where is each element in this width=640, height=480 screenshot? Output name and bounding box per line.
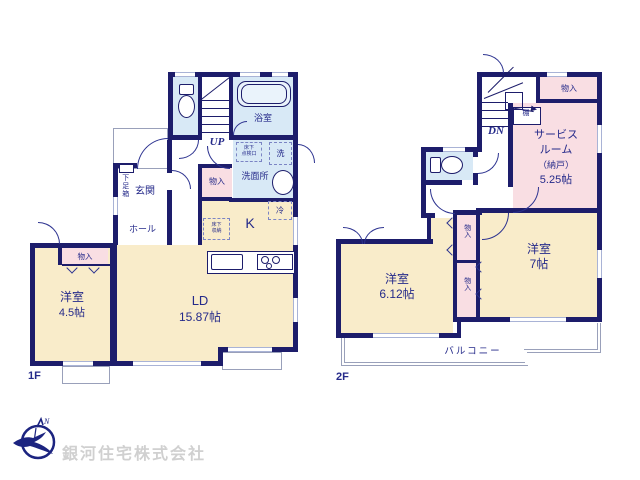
room-size: 5.25帖 <box>540 174 572 186</box>
bedroom-4-5-closet-label: 物入 <box>62 252 108 261</box>
wall <box>198 201 202 245</box>
entrance-label: 玄関 <box>124 186 166 199</box>
room-size: 4.5帖 <box>59 307 85 319</box>
underfloor-inspection-box: 床下 点検口 <box>236 142 262 162</box>
fridge-box: 冷 <box>268 201 292 220</box>
wall <box>168 72 173 140</box>
window <box>293 217 298 245</box>
step-bedroom <box>62 366 110 384</box>
wall <box>336 239 341 338</box>
room-name-line: ルーム <box>540 144 573 156</box>
window <box>133 361 201 366</box>
hall-closet-label: 物入 <box>202 177 232 187</box>
label: 洗 <box>277 149 285 158</box>
balcony-label: バルコニー <box>423 346 523 358</box>
window <box>547 72 567 77</box>
wall <box>597 72 602 322</box>
wall <box>473 173 478 185</box>
window <box>443 147 465 152</box>
window <box>113 197 118 215</box>
room-name: 洋室 <box>527 242 551 256</box>
living-dining-label: LD 15.87帖 <box>155 293 245 326</box>
window <box>597 250 602 278</box>
stairs-up-label: UP <box>202 136 232 150</box>
wall <box>453 260 480 263</box>
window <box>597 125 602 153</box>
window <box>293 298 298 322</box>
wall <box>110 243 117 366</box>
washer-box: 洗 <box>269 142 292 165</box>
room-name-line: （納戸） <box>538 160 574 170</box>
step-living <box>222 352 282 370</box>
shoe-box-label: 下足箱 <box>120 174 129 198</box>
bathtub-inner <box>241 84 287 104</box>
wall <box>218 347 223 366</box>
window <box>272 72 288 77</box>
kitchen-label: K <box>235 215 265 233</box>
door-arc <box>364 227 384 244</box>
room-size: 6.12帖 <box>379 287 414 301</box>
window <box>175 72 195 77</box>
window <box>510 317 566 322</box>
kitchen-sink <box>211 254 243 270</box>
bath-label: 浴室 <box>240 113 286 124</box>
company-logo-icon: N <box>10 412 64 466</box>
label: 収納 <box>211 229 221 235</box>
company-logo: N 銀河住宅株式会社 <box>10 412 310 468</box>
washroom-label: 洗面所 <box>231 171 279 182</box>
toilet-bowl-icon <box>178 95 195 118</box>
shoe-box-top <box>119 164 134 173</box>
upper-closet-label: 物入 <box>540 84 598 94</box>
stair-treads <box>202 93 229 138</box>
room-name: 洋室 <box>385 272 409 286</box>
door-arc <box>38 222 60 244</box>
room-size: 7帖 <box>530 257 549 271</box>
floor-2-label: 2F <box>336 371 366 385</box>
stove-burner <box>272 256 280 264</box>
wall <box>198 197 232 201</box>
window <box>228 347 272 352</box>
stairs-down-label: DN <box>482 125 510 139</box>
toilet-tank-icon <box>430 157 441 173</box>
bedroom-6-12-label: 洋室 6.12帖 <box>352 272 442 302</box>
wall <box>229 77 233 140</box>
stove-burner <box>266 263 272 269</box>
door-arc <box>298 144 315 163</box>
toilet-bowl-icon <box>441 156 463 174</box>
room-name: LD <box>192 293 209 308</box>
window <box>63 361 93 366</box>
wall <box>426 180 462 185</box>
door-arc <box>343 227 363 244</box>
hall-label: ホール <box>118 224 167 235</box>
door-arc <box>483 54 504 73</box>
wall <box>30 243 35 366</box>
closet-a-label: 物入 <box>462 224 471 238</box>
company-name: 銀河住宅株式会社 <box>62 440 206 464</box>
underfloor-storage-box: 床下 収納 <box>203 218 230 240</box>
svg-text:N: N <box>43 417 50 426</box>
wall <box>167 190 172 245</box>
wall <box>538 99 598 103</box>
wall <box>229 135 298 140</box>
shelf-label: 棚 <box>513 110 539 119</box>
closet-b-label: 物入 <box>462 277 471 291</box>
label: 点検口 <box>241 152 256 158</box>
window <box>240 72 260 77</box>
balcony-outline <box>524 323 598 350</box>
room-size: 15.87帖 <box>179 310 221 324</box>
room-name: 洋室 <box>60 290 84 304</box>
floor-plan-canvas: 床下 点検口 洗 冷 床下 収納 浴室 UP 洗面所 物入 K 玄関 下足箱 ホ… <box>0 0 640 480</box>
label: 冷 <box>276 206 284 215</box>
bedroom-4-5-label: 洋室 4.5帖 <box>42 290 102 321</box>
service-room-label: サービス ルーム （納戸） 5.25帖 <box>516 128 596 187</box>
bedroom-7-label: 洋室 7帖 <box>494 242 584 272</box>
room-name-line: サービス <box>534 129 578 141</box>
floor-1-label: 1F <box>28 370 58 384</box>
toilet-tank-icon <box>179 84 194 95</box>
